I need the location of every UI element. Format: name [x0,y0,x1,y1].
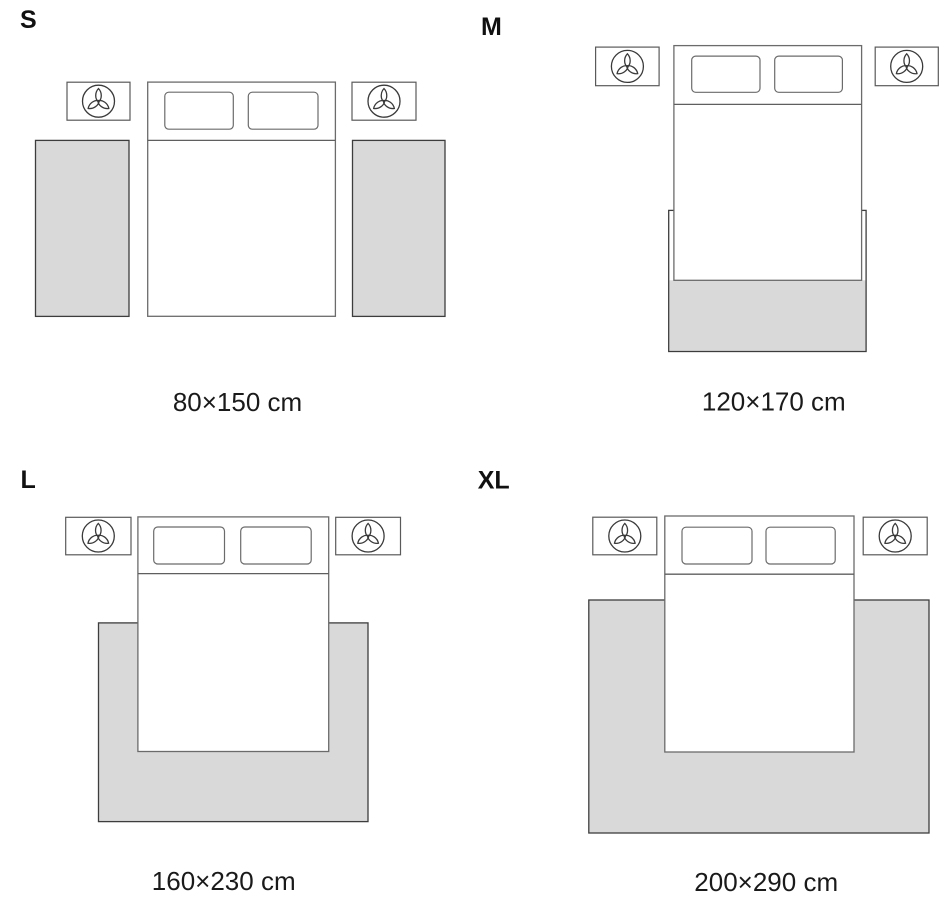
svg-text:160×230 cm: 160×230 cm [152,866,296,896]
svg-text:S: S [20,6,37,34]
svg-text:80×150 cm: 80×150 cm [173,387,302,417]
svg-text:120×170 cm: 120×170 cm [702,387,846,417]
svg-text:XL: XL [478,467,510,495]
svg-text:200×290 cm: 200×290 cm [694,867,838,897]
svg-text:L: L [21,466,36,494]
svg-text:M: M [481,13,502,41]
